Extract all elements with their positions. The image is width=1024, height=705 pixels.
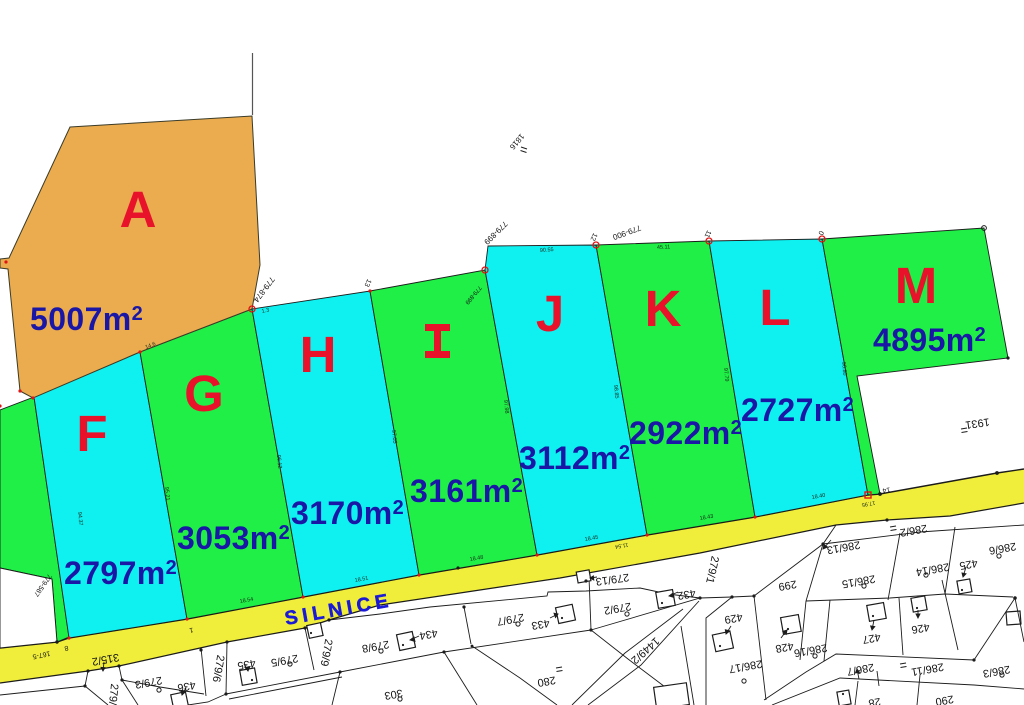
svg-text:M: M (895, 257, 937, 314)
svg-text:A: A (120, 181, 157, 238)
svg-text:G: G (184, 365, 224, 422)
svg-text:3161m2: 3161m2 (410, 473, 523, 509)
svg-text:K: K (645, 280, 682, 337)
svg-text:4895m2: 4895m2 (873, 322, 986, 358)
svg-text:2922m2: 2922m2 (629, 415, 742, 451)
svg-text:45.11: 45.11 (657, 244, 671, 251)
svg-text:L: L (759, 279, 790, 336)
svg-text:2797m2: 2797m2 (64, 555, 177, 591)
svg-text:H: H (300, 326, 337, 383)
svg-text:J: J (536, 285, 564, 342)
svg-text:3170m2: 3170m2 (291, 495, 404, 531)
svg-text:5007m2: 5007m2 (30, 301, 143, 337)
svg-text:3112m2: 3112m2 (519, 440, 630, 476)
svg-text:90.55: 90.55 (540, 247, 554, 254)
svg-text:14: 14 (882, 485, 891, 493)
svg-text:F: F (76, 405, 107, 462)
svg-text:279/: 279/ (106, 683, 120, 705)
svg-text:2727m2: 2727m2 (741, 392, 854, 428)
svg-text:3053m2: 3053m2 (177, 520, 290, 556)
